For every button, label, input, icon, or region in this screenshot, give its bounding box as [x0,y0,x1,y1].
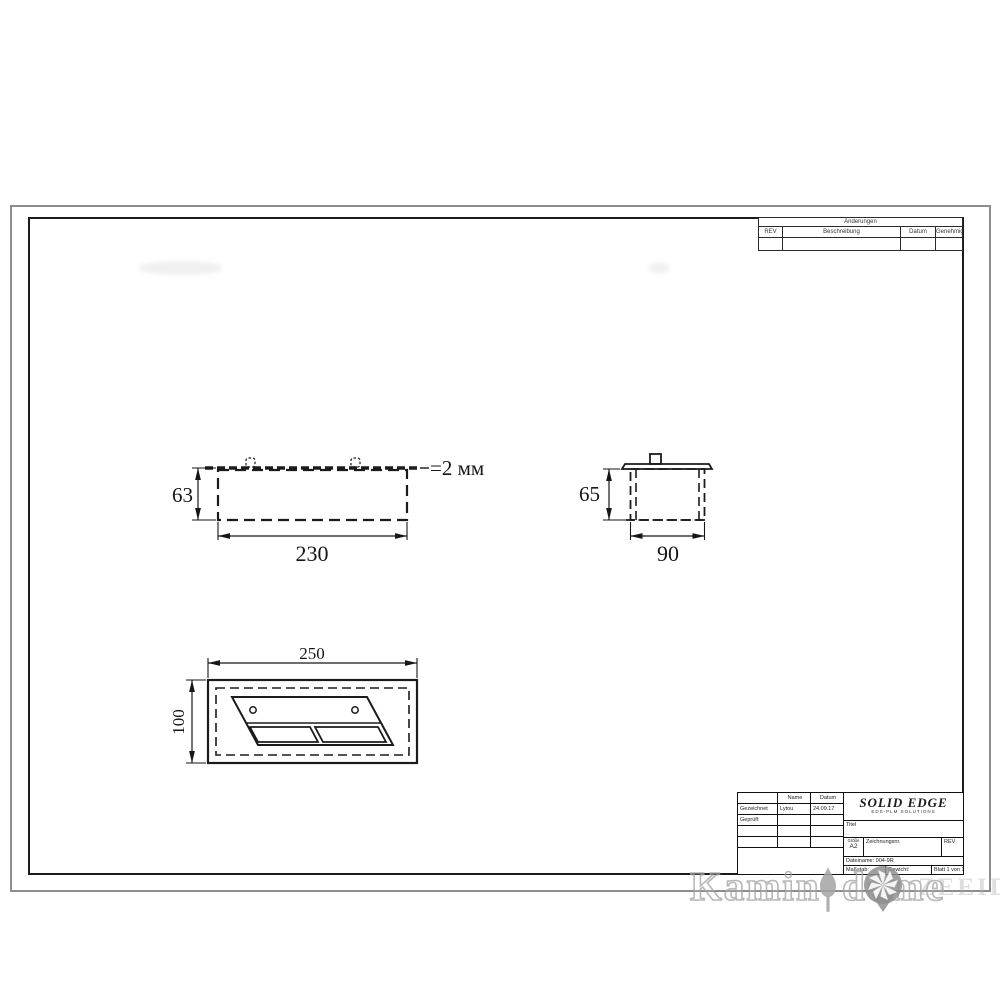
title-field-label: Titel [846,822,856,828]
top-view: 250 100 [172,643,437,783]
size-value: A2 [844,843,863,851]
front-tab-left [246,458,255,467]
watermark-faint-tail: ZEEIDE [918,874,1000,902]
rev-cell: REV [941,838,963,856]
side-view: 65 90 [575,438,730,573]
page: Änderungen REV Beschreibung Datum Genehm… [0,0,1000,1000]
drawn-date: 24.09.17 [811,804,843,814]
artifact-smudge [138,261,223,275]
side-height-dim: 65 [579,482,600,506]
top-width-dim: 250 [299,644,325,663]
revision-col-date: Datum [901,227,936,237]
drawing-number-label: Zeichnungsnr. [864,838,941,856]
drawing-number-row: Größe A2 Zeichnungsnr. REV [844,838,963,857]
top-cutout-right [315,727,386,742]
revision-table: Änderungen REV Beschreibung Datum Genehm… [758,217,963,251]
top-hole-right [352,707,358,713]
solid-edge-logo: SOLID EDGE EDS-PLM SOLUTIONS [844,793,963,821]
pinwheel-logo-icon [862,864,904,914]
size-cell: Größe A2 [844,838,864,856]
revision-table-title: Änderungen [759,218,962,227]
revision-table-header: REV Beschreibung Datum Genehmigt [759,227,962,238]
revision-col-description: Beschreibung [783,227,901,237]
logo-title: SOLID EDGE [844,796,963,809]
drawn-label: Gezeichnet [738,804,778,814]
side-width-dim: 90 [657,541,679,566]
revision-col-approved: Genehmigt [936,227,962,237]
top-hole-left [250,707,256,713]
name-header: Name [778,793,811,803]
watermark-word-kamin: Kamin [690,862,821,910]
artifact-smudge [648,263,670,273]
front-tab-right [351,458,360,467]
top-height-dim: 100 [169,709,188,735]
revision-table-empty-row [759,238,962,250]
date-header: Datum [811,793,843,803]
front-width-dim: 230 [296,541,329,566]
title-field: Titel [844,821,963,838]
top-cutout-left [250,727,318,742]
side-body-outline [631,469,705,520]
revision-col-rev: REV [759,227,783,237]
drawn-name: Lytou [778,804,811,814]
front-height-dim: 63 [172,483,193,507]
front-body-outline [218,470,407,520]
front-view: 63 230 =2 мм [170,438,500,573]
flame-icon [818,866,838,914]
side-tab [650,454,661,464]
top-outer-outline [208,680,417,763]
checked-label: Geprüft [738,815,778,825]
front-thickness-note: =2 мм [430,456,484,480]
